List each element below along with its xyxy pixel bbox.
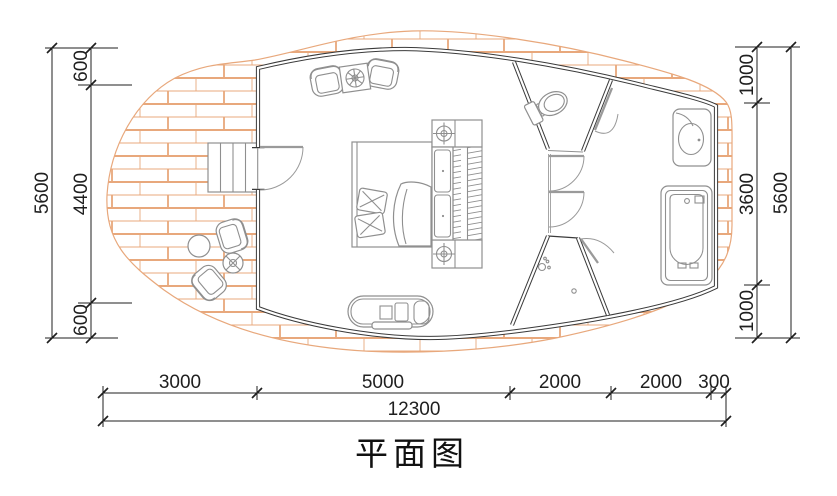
- deck-parasol-base: [223, 253, 243, 273]
- floor-plan-page: 600 4400 600 5600 1000 3600 1000 5600 30…: [0, 0, 837, 496]
- pillow: [356, 188, 387, 215]
- duvet: [393, 182, 431, 246]
- dim-left-total: 5600: [32, 172, 53, 214]
- dim-right-seg-mid: 3600: [737, 173, 758, 215]
- dim-right-total: 5600: [771, 172, 792, 214]
- vanity-sink: [673, 109, 711, 166]
- tv-bench: [348, 296, 433, 329]
- dim-bottom-seg-5: 300: [698, 372, 730, 393]
- plan-title: 平面图: [355, 435, 469, 472]
- dim-left-seg-bottom: 600: [71, 304, 92, 336]
- dim-left-seg-mid: 4400: [71, 173, 92, 215]
- dim-bottom-seg-4: 2000: [640, 372, 682, 393]
- dim-bottom-total: 12300: [388, 399, 441, 420]
- wardrobe: [432, 120, 482, 268]
- dim-left-seg-top: 600: [71, 50, 92, 82]
- floor-plan-canvas: 600 4400 600 5600 1000 3600 1000 5600 30…: [0, 0, 837, 496]
- deck-round-table: [188, 235, 210, 257]
- side-table: [339, 63, 370, 93]
- dim-right-seg-top: 1000: [737, 54, 758, 96]
- dimension-bottom: 3000 5000 2000 2000 300 12300: [98, 372, 731, 427]
- dim-bottom-seg-2: 5000: [362, 372, 404, 393]
- bed: [352, 142, 432, 247]
- dim-right-seg-bottom: 1000: [737, 290, 758, 332]
- bathtub: [661, 186, 712, 285]
- dimension-right: 1000 3600 1000 5600: [735, 42, 800, 343]
- dim-bottom-seg-3: 2000: [539, 372, 581, 393]
- dim-bottom-seg-1: 3000: [159, 372, 201, 393]
- entry-stairs: [208, 143, 258, 192]
- pillow: [354, 212, 385, 238]
